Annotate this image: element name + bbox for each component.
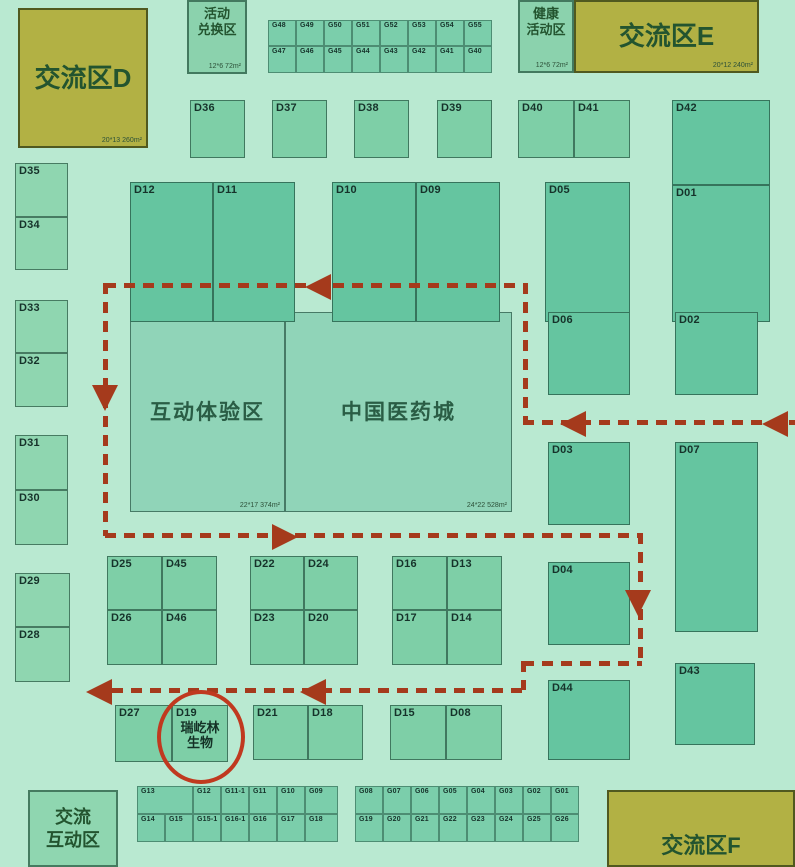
booth-D14: D14 [447,610,502,665]
booth-G05: G05 [439,786,467,814]
zone-label: 活动兑换区 [189,6,245,39]
booth-D34: D34 [15,217,68,270]
hall-area-label: 22*17 374m² [240,502,280,509]
booth-id-label: D39 [441,102,462,114]
booth-D24: D24 [304,556,358,610]
booth-id-label: D27 [119,707,140,719]
booth-id-label: D36 [194,102,215,114]
booth-G22: G22 [439,814,467,842]
booth-D01: D01 [672,185,770,322]
booth-id-label: G16-1 [225,816,245,823]
booth-D15: D15 [390,705,446,760]
booth-id-label: G44 [356,48,370,55]
booth-G46: G46 [296,46,324,73]
route-arrow-left [560,411,586,437]
booth-G41: G41 [436,46,464,73]
booth-D30: D30 [15,490,68,545]
booth-id-label: D31 [19,437,40,449]
zone-area-label: 12*6 72m² [536,62,568,69]
booth-id-label: D26 [111,612,132,624]
booth-G40: G40 [464,46,492,73]
booth-id-label: D03 [552,444,573,456]
booth-id-label: G06 [415,788,429,795]
hall-area-label: 24*22 528m² [467,502,507,509]
booth-G15-1: G15-1 [193,814,221,842]
booth-id-label: D33 [19,302,40,314]
booth-G02: G02 [523,786,551,814]
booth-D41: D41 [574,100,630,158]
zone-health-activity: 健康活动区12*6 72m² [518,0,574,73]
booth-D33: D33 [15,300,68,353]
hall-label: 互动体验区 [131,396,284,426]
booth-D26: D26 [107,610,162,665]
booth-G54: G54 [436,20,464,46]
booth-G48: G48 [268,20,296,46]
route-arrow-left [86,679,112,705]
highlight-circle-D19 [157,690,245,784]
zone-label: 交流区E [576,20,757,53]
booth-id-label: D25 [111,558,132,570]
booth-id-label: G13 [141,788,155,795]
booth-G24: G24 [495,814,523,842]
booth-G50: G50 [324,20,352,46]
booth-id-label: D46 [166,612,187,624]
booth-G03: G03 [495,786,523,814]
booth-D07: D07 [675,442,758,632]
hall-label: 中国医药城 [286,396,511,426]
booth-id-label: G10 [281,788,295,795]
booth-id-label: G19 [359,816,373,823]
booth-G16: G16 [249,814,277,842]
booth-id-label: D11 [217,184,237,196]
booth-id-label: D22 [254,558,275,570]
booth-D35: D35 [15,163,68,217]
booth-G08: G08 [355,786,383,814]
booth-id-label: D17 [396,612,417,624]
booth-G51: G51 [352,20,380,46]
booth-id-label: D09 [420,184,441,196]
booth-D40: D40 [518,100,574,158]
zone-area-label: 20*13 260m² [102,137,142,144]
zone-exchange-interact: 交流互动区 [28,790,118,867]
booth-id-label: G46 [300,48,314,55]
booth-id-label: G03 [499,788,513,795]
booth-id-label: G41 [440,48,454,55]
booth-G25: G25 [523,814,551,842]
route-arrow-right [272,524,298,550]
booth-G09: G09 [305,786,338,814]
booth-id-label: G50 [328,22,342,29]
booth-G53: G53 [408,20,436,46]
booth-D04: D04 [548,562,630,645]
booth-D05: D05 [545,182,630,322]
booth-id-label: D18 [312,707,333,719]
booth-G14: G14 [137,814,165,842]
booth-id-label: G52 [384,22,398,29]
booth-G42: G42 [408,46,436,73]
booth-G44: G44 [352,46,380,73]
route-arrow-left [300,679,326,705]
route-path-segment [521,661,526,690]
booth-D25: D25 [107,556,162,610]
booth-D37: D37 [272,100,327,158]
booth-D43: D43 [675,663,755,745]
booth-id-label: G05 [443,788,457,795]
exhibition-floor-plan: 交流区D20*13 260m²活动兑换区12*6 72m²健康活动区12*6 7… [0,0,795,867]
booth-D36: D36 [190,100,245,158]
booth-D11: D11 [213,182,295,322]
booth-D32: D32 [15,353,68,407]
route-path-segment [523,661,642,666]
booth-G18: G18 [305,814,338,842]
zone-label: 交流互动区 [30,806,116,851]
booth-id-label: G16 [253,816,267,823]
booth-id-label: G24 [499,816,513,823]
booth-G04: G04 [467,786,495,814]
booth-id-label: G09 [309,788,323,795]
booth-id-label: D24 [308,558,329,570]
booth-D12: D12 [130,182,213,322]
booth-D21: D21 [253,705,308,760]
booth-D38: D38 [354,100,409,158]
booth-D45: D45 [162,556,217,610]
booth-id-label: D01 [676,187,697,199]
booth-id-label: G54 [440,22,454,29]
zone-label: 交流区F [609,832,793,860]
booth-D39: D39 [437,100,492,158]
booth-id-label: D32 [19,355,40,367]
booth-D42: D42 [672,100,770,185]
booth-D20: D20 [304,610,358,665]
booth-id-label: G15 [169,816,183,823]
booth-G43: G43 [380,46,408,73]
booth-G20: G20 [383,814,411,842]
booth-G47: G47 [268,46,296,73]
booth-id-label: D29 [19,575,40,587]
booth-id-label: G11 [253,788,266,795]
booth-D06: D06 [548,312,630,395]
booth-G16-1: G16-1 [221,814,249,842]
booth-id-label: D12 [134,184,155,196]
booth-D17: D17 [392,610,447,665]
booth-id-label: D16 [396,558,417,570]
route-arrow-left [305,274,331,300]
booth-id-label: G20 [387,816,401,823]
booth-id-label: D08 [450,707,471,719]
zone-exchange-f: 交流区F [607,790,795,867]
zone-area-label: 12*6 72m² [209,63,241,70]
booth-G17: G17 [277,814,305,842]
route-arrow-down [92,385,118,411]
booth-id-label: D07 [679,444,700,456]
booth-G45: G45 [324,46,352,73]
booth-id-label: G07 [387,788,401,795]
booth-D28: D28 [15,627,70,682]
zone-exchange-e: 交流区E20*12 240m² [574,0,759,73]
route-path-segment [523,283,528,420]
booth-id-label: G40 [468,48,482,55]
booth-id-label: D45 [166,558,187,570]
booth-id-label: D43 [679,665,700,677]
booth-id-label: G17 [281,816,295,823]
booth-id-label: D02 [679,314,700,326]
booth-id-label: G49 [300,22,314,29]
booth-D13: D13 [447,556,502,610]
booth-G21: G21 [411,814,439,842]
booth-id-label: G47 [272,48,286,55]
booth-G11: G11 [249,786,277,814]
booth-G52: G52 [380,20,408,46]
booth-G11-1: G11-1 [221,786,249,814]
booth-D10: D10 [332,182,416,322]
booth-id-label: D44 [552,682,573,694]
booth-id-label: G18 [309,816,323,823]
zone-area-label: 20*12 240m² [713,62,753,69]
booth-id-label: D42 [676,102,697,114]
booth-D16: D16 [392,556,447,610]
booth-id-label: D23 [254,612,275,624]
booth-id-label: G21 [415,816,429,823]
booth-D18: D18 [308,705,363,760]
booth-id-label: D15 [394,707,415,719]
booth-id-label: G23 [471,816,485,823]
zone-label: 交流区D [20,62,146,95]
booth-id-label: D05 [549,184,570,196]
route-path-segment [105,533,642,538]
booth-id-label: G02 [527,788,541,795]
booth-id-label: G45 [328,48,342,55]
booth-G12: G12 [193,786,221,814]
booth-id-label: D20 [308,612,329,624]
booth-G49: G49 [296,20,324,46]
booth-id-label: G12 [197,788,211,795]
booth-id-label: G26 [555,816,569,823]
booth-id-label: D41 [578,102,599,114]
booth-id-label: G08 [359,788,373,795]
booth-D46: D46 [162,610,217,665]
booth-id-label: G22 [443,816,457,823]
booth-D22: D22 [250,556,304,610]
booth-id-label: D40 [522,102,543,114]
zone-activity-redeem: 活动兑换区12*6 72m² [187,0,247,74]
booth-D23: D23 [250,610,304,665]
booth-G10: G10 [277,786,305,814]
booth-G15: G15 [165,814,193,842]
booth-G06: G06 [411,786,439,814]
zone-exchange-d: 交流区D20*13 260m² [18,8,148,148]
booth-id-label: G04 [471,788,485,795]
booth-G26: G26 [551,814,579,842]
hall-china-medical-city: 中国医药城24*22 528m² [285,312,512,512]
route-arrow-left [762,411,788,437]
booth-id-label: D28 [19,629,40,641]
booth-id-label: G48 [272,22,286,29]
booth-id-label: D06 [552,314,573,326]
booth-G55: G55 [464,20,492,46]
booth-D44: D44 [548,680,630,760]
zone-label: 健康活动区 [520,6,572,39]
booth-id-label: G25 [527,816,541,823]
booth-id-label: G14 [141,816,155,823]
booth-D29: D29 [15,573,70,627]
booth-id-label: D38 [358,102,379,114]
hall-interactive-experience: 互动体验区22*17 374m² [130,312,285,512]
booth-id-label: G53 [412,22,426,29]
booth-id-label: G15-1 [197,816,217,823]
booth-id-label: D14 [451,612,472,624]
booth-id-label: D21 [257,707,278,719]
booth-id-label: G43 [384,48,398,55]
booth-D03: D03 [548,442,630,525]
booth-D09: D09 [416,182,500,322]
booth-id-label: D37 [276,102,297,114]
booth-D08: D08 [446,705,502,760]
booth-G23: G23 [467,814,495,842]
booth-id-label: G11-1 [225,788,245,795]
booth-id-label: D13 [451,558,472,570]
booth-G13: G13 [137,786,193,814]
booth-id-label: G55 [468,22,482,29]
booth-id-label: G42 [412,48,426,55]
booth-G19: G19 [355,814,383,842]
booth-id-label: D10 [336,184,357,196]
booth-id-label: G51 [356,22,370,29]
booth-id-label: G01 [555,788,569,795]
booth-D02: D02 [675,312,758,395]
booth-id-label: D35 [19,165,40,177]
booth-G07: G07 [383,786,411,814]
booth-id-label: D30 [19,492,40,504]
route-arrow-down [625,590,651,616]
booth-G01: G01 [551,786,579,814]
booth-D31: D31 [15,435,68,490]
booth-id-label: D04 [552,564,573,576]
booth-id-label: D34 [19,219,40,231]
